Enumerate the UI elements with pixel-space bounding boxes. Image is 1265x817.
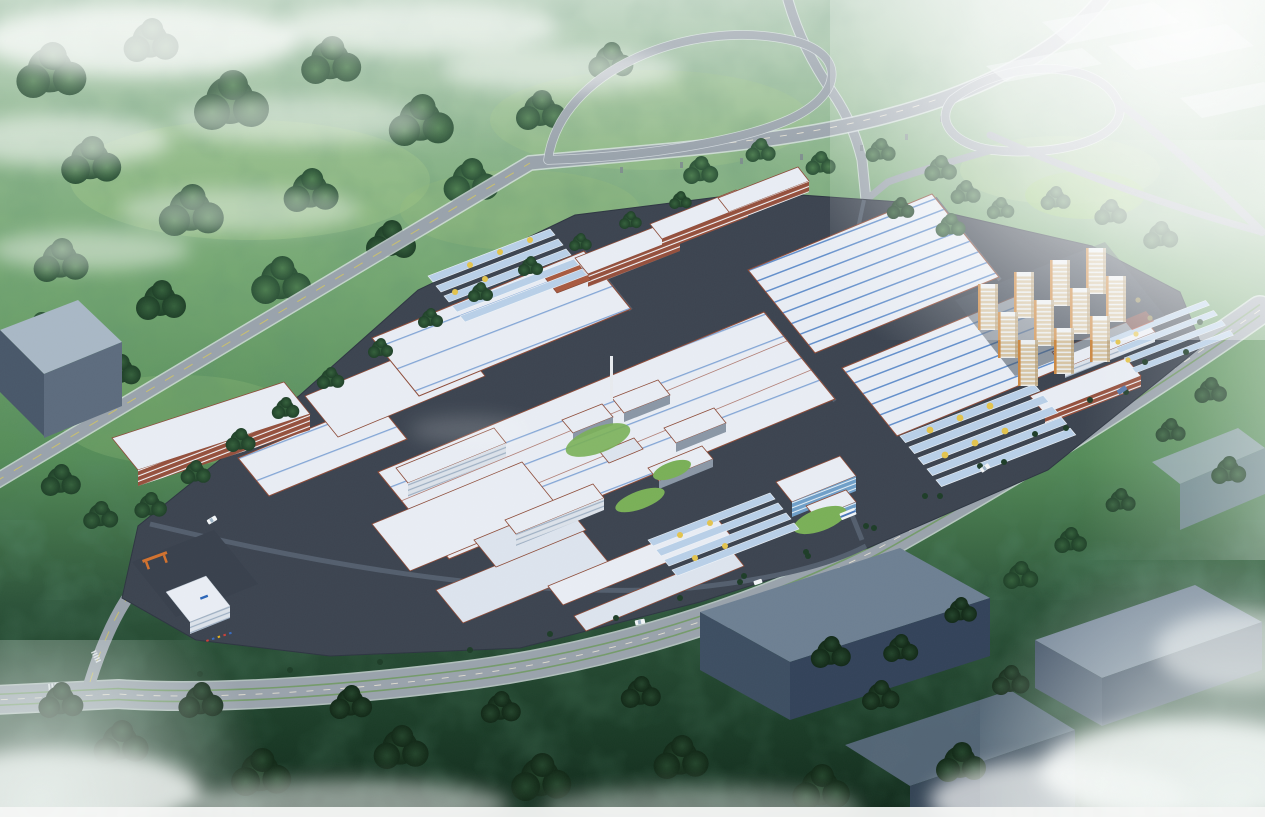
scene-svg: [0, 0, 1265, 817]
aerial-rendering: [0, 0, 1265, 817]
scan-edge-strip: [0, 807, 1265, 817]
scan-grain: [0, 0, 1265, 817]
